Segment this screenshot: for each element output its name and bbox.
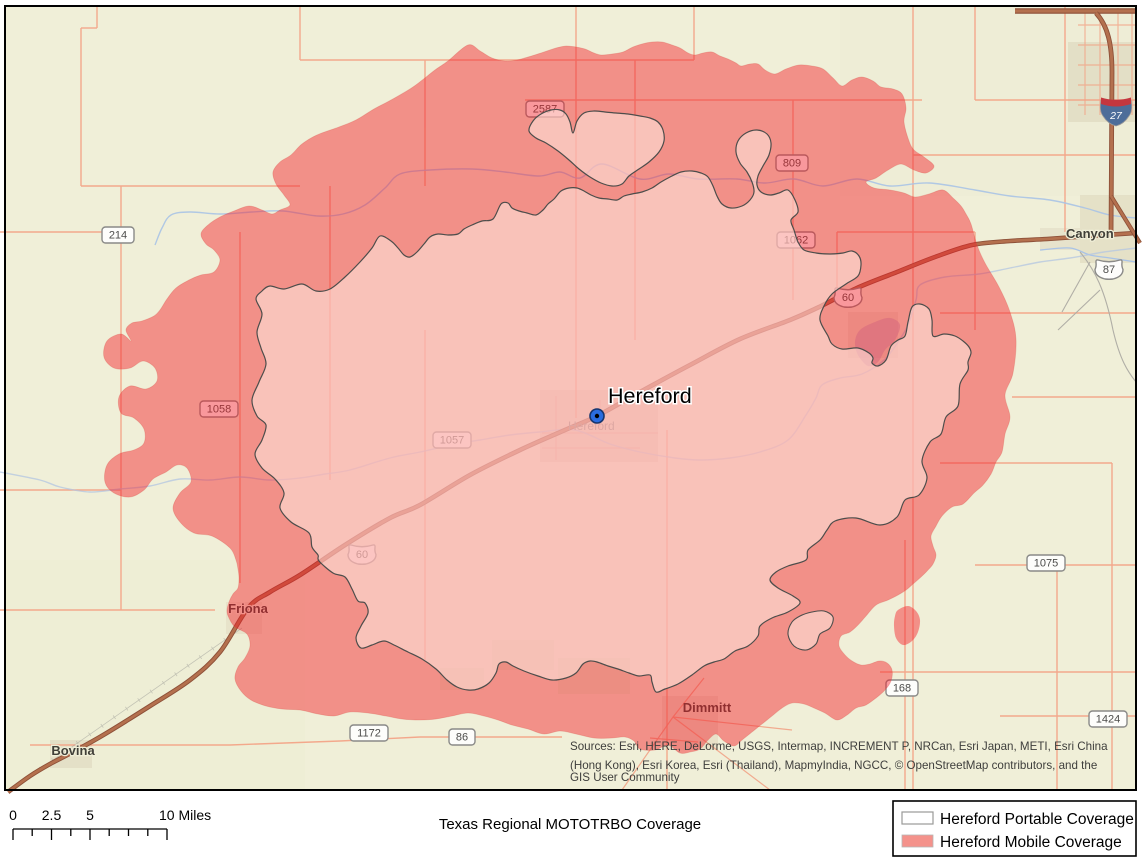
svg-text:Hereford Portable Coverage: Hereford Portable Coverage xyxy=(940,811,1134,828)
svg-text:86: 86 xyxy=(456,732,468,744)
svg-text:214: 214 xyxy=(109,230,127,242)
svg-text:Texas Regional MOTOTRBO Covera: Texas Regional MOTOTRBO Coverage xyxy=(439,816,701,833)
svg-text:Bovina: Bovina xyxy=(51,743,95,758)
svg-text:1424: 1424 xyxy=(1096,714,1120,726)
svg-text:GIS User Community: GIS User Community xyxy=(570,771,680,784)
svg-text:1075: 1075 xyxy=(1034,558,1058,570)
svg-text:0: 0 xyxy=(9,807,17,823)
svg-text:Sources: Esri, HERE, DeLorme,: Sources: Esri, HERE, DeLorme, USGS, Inte… xyxy=(570,740,1108,753)
svg-text:2.5: 2.5 xyxy=(42,807,62,823)
svg-text:Hereford: Hereford xyxy=(608,384,692,408)
svg-text:27: 27 xyxy=(1109,110,1123,122)
svg-text:5: 5 xyxy=(86,807,94,823)
svg-text:Hereford Mobile Coverage: Hereford Mobile Coverage xyxy=(940,834,1122,851)
svg-text:10 Miles: 10 Miles xyxy=(159,807,211,823)
svg-text:168: 168 xyxy=(893,683,911,695)
svg-text:Canyon: Canyon xyxy=(1066,226,1114,241)
svg-text:1172: 1172 xyxy=(357,728,381,740)
svg-text:87: 87 xyxy=(1103,264,1115,276)
